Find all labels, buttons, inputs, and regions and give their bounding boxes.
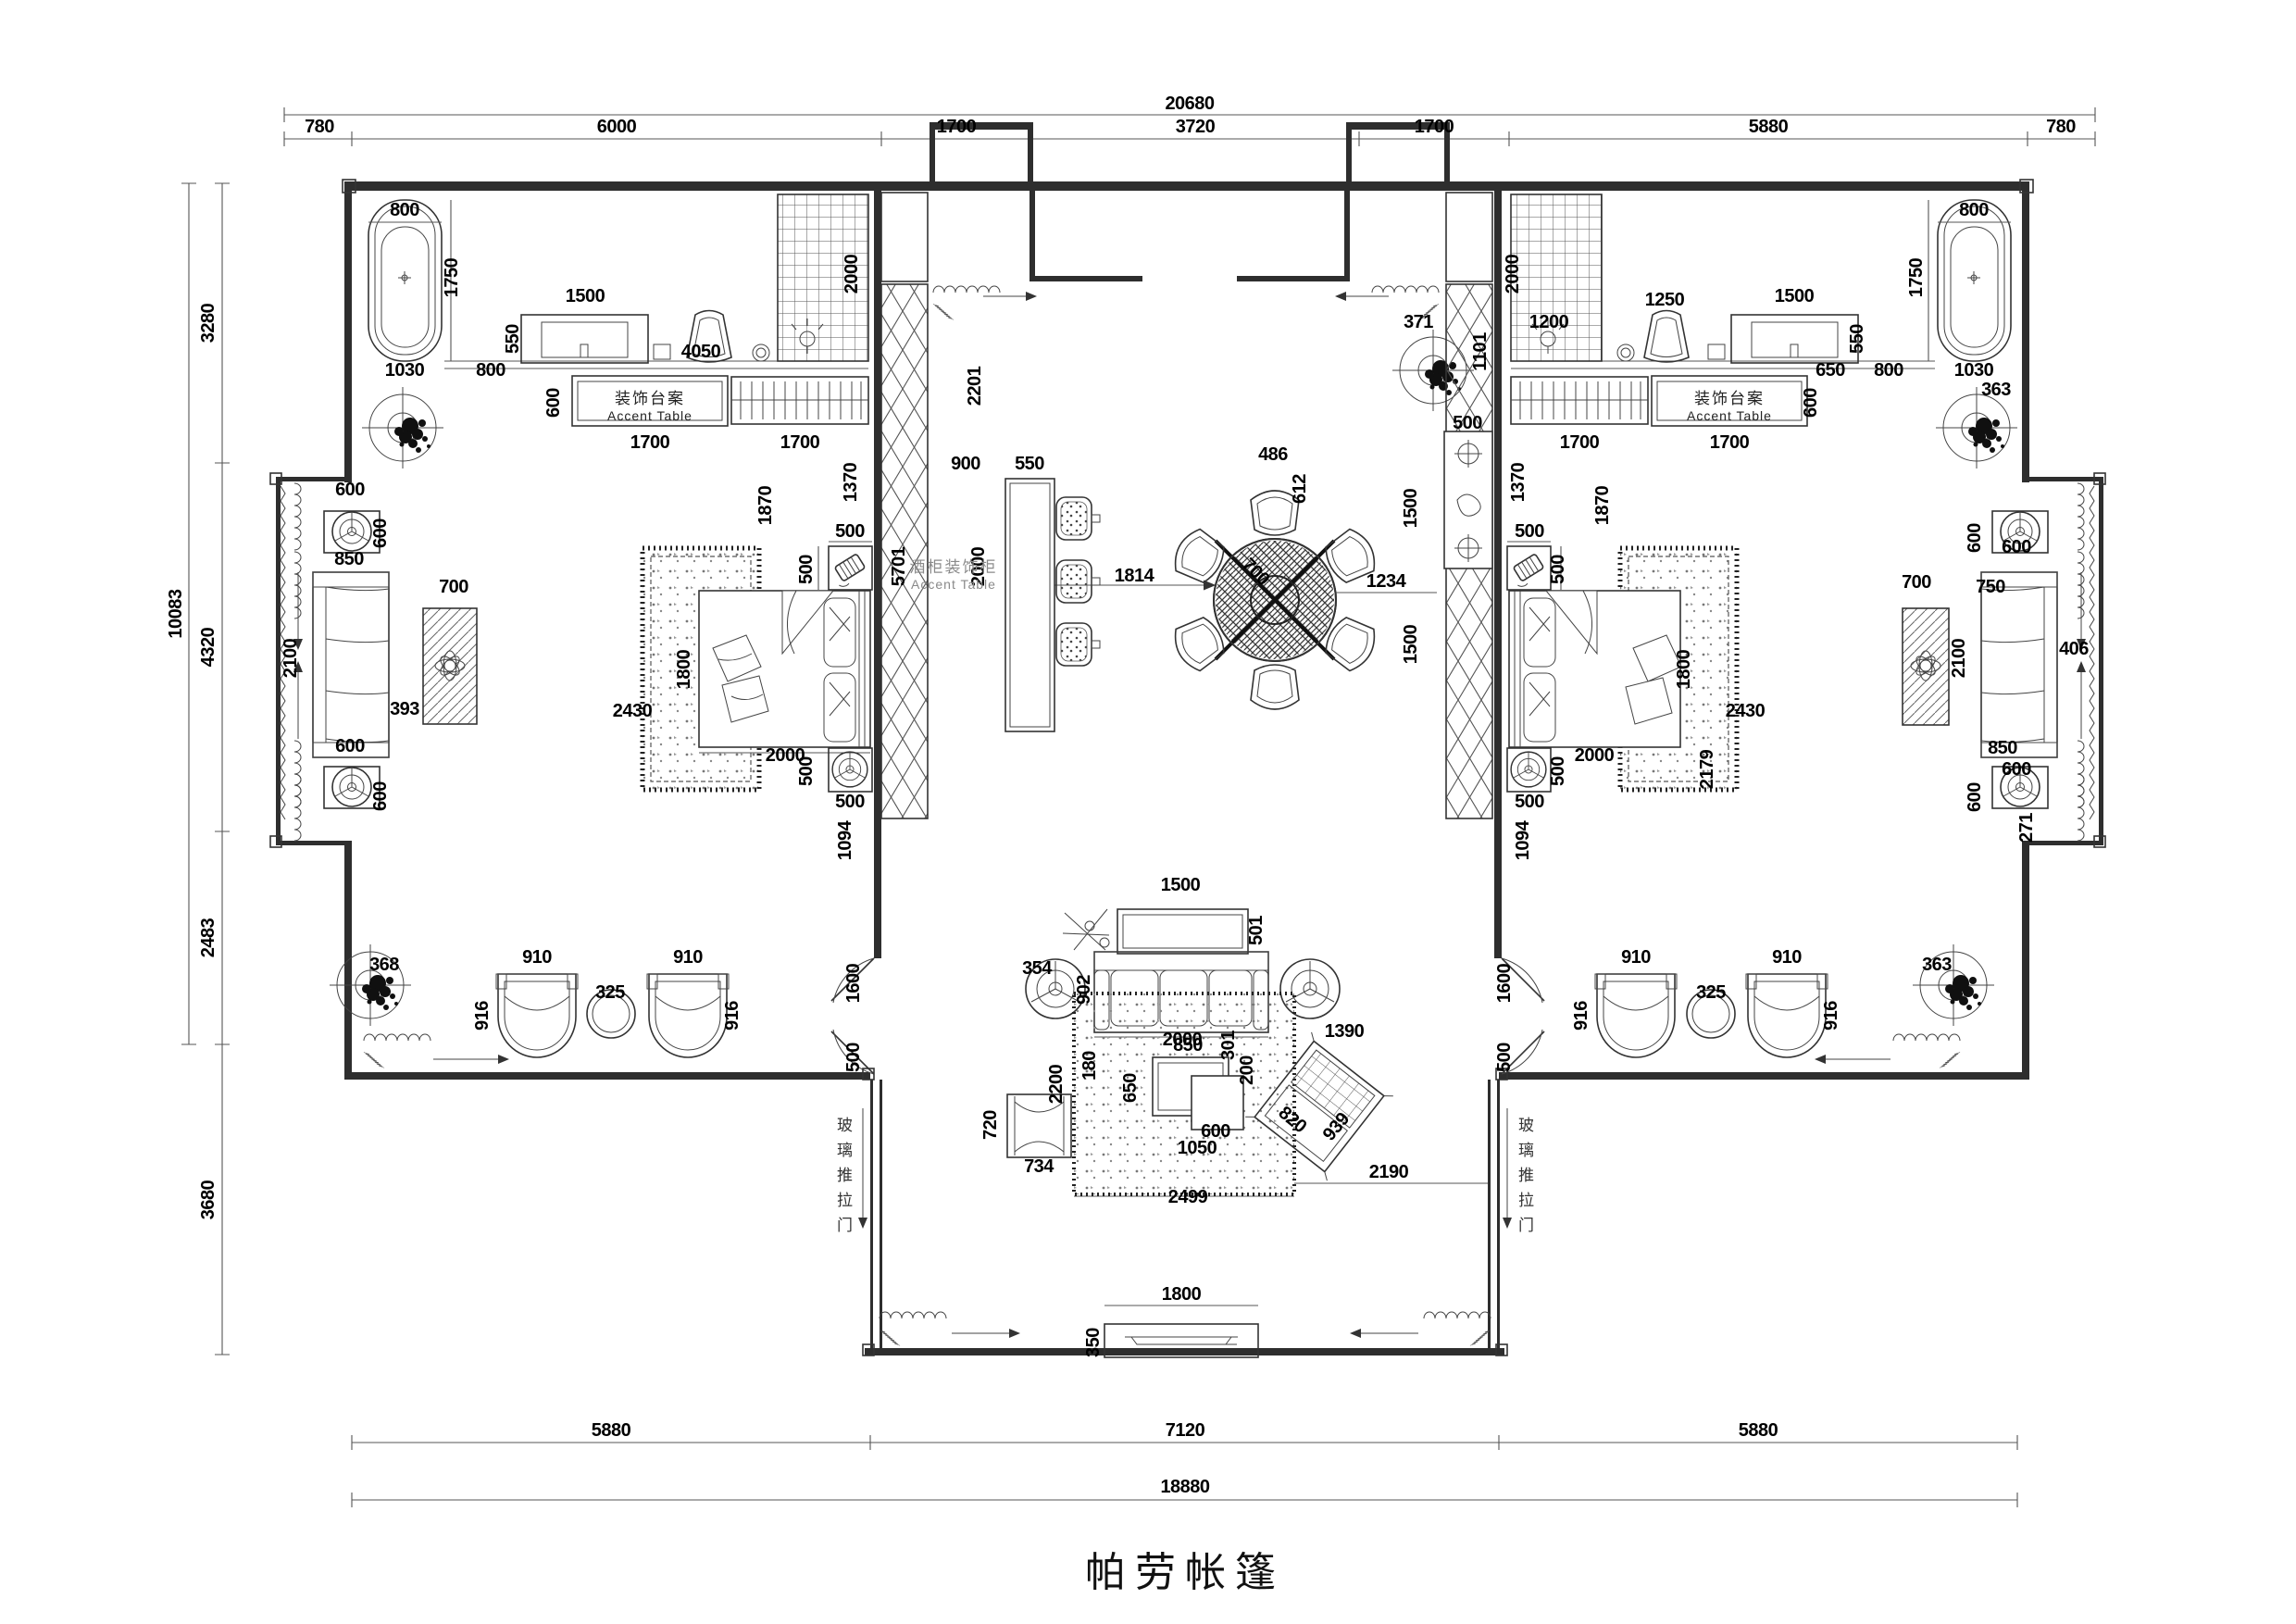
dim-text: 1030 (385, 360, 425, 381)
dim-text: 1094 (1513, 819, 1533, 860)
dim-text: 1600 (843, 963, 864, 1003)
dim-text: 1700 (1415, 117, 1454, 137)
dim-text: 3680 (198, 1180, 218, 1219)
dim-text: 600 (370, 518, 391, 548)
dim-text: 500 (796, 555, 817, 584)
dim-text: 910 (673, 947, 703, 968)
dim-text: 910 (1772, 947, 1802, 968)
dim-text: 7120 (1166, 1420, 1205, 1441)
dim-text: 800 (1959, 200, 1989, 220)
right-bay-lounge (1903, 483, 2084, 841)
accent-table-label-left: 装饰台案 Accent Table (557, 385, 742, 423)
dim-text: 2190 (1369, 1162, 1409, 1182)
dim-text: 486 (1258, 444, 1288, 465)
dim-text: 2000 (1575, 745, 1615, 766)
dim-text: 850 (1173, 1035, 1203, 1056)
dim-text: 612 (1290, 474, 1310, 504)
dim-text: 393 (390, 699, 419, 719)
dim-text: 2000 (1503, 254, 1523, 294)
dim-text: 650 (1816, 360, 1845, 381)
dim-text: 363 (1981, 380, 2011, 400)
dim-text: 1101 (1470, 332, 1491, 371)
dim-text: 500 (1515, 521, 1544, 542)
floorplan-drawing: 2068078060001700372017005880780100833280… (0, 0, 2296, 1624)
dim-text: 2483 (198, 918, 218, 957)
dim-text: 1500 (1161, 875, 1201, 895)
dim-text: 2100 (281, 638, 301, 678)
dim-text: 371 (1404, 312, 1433, 332)
dim-text: 18880 (1160, 1477, 1209, 1497)
accent-table-right-cn: 装饰台案 (1637, 385, 1822, 408)
dim-text: 500 (835, 521, 865, 542)
dim-text: 1250 (1645, 290, 1685, 310)
dim-text: 2430 (613, 701, 653, 721)
dim-text: 10083 (166, 589, 186, 638)
dim-text: 1030 (1954, 360, 1994, 381)
dim-text: 916 (1571, 1001, 1591, 1031)
dim-text: 2499 (1168, 1187, 1208, 1207)
dim-text: 600 (335, 736, 365, 756)
dim-text: 550 (1847, 324, 1867, 354)
dim-text: 5880 (1739, 1420, 1778, 1441)
dim-text: 2179 (1697, 749, 1717, 789)
dim-text: 1234 (1366, 571, 1407, 592)
dim-text: 500 (1494, 1043, 1515, 1072)
accent-table-left-cn: 装饰台案 (557, 385, 742, 408)
dim-text: 354 (1022, 958, 1053, 979)
accent-table-label-right: 装饰台案 Accent Table (1637, 385, 1822, 423)
dim-text: 500 (1515, 792, 1544, 812)
dim-text: 1870 (755, 485, 776, 525)
dim-text: 363 (1922, 955, 1952, 975)
dim-text: 720 (980, 1110, 1001, 1140)
dim-text: 200 (1237, 1056, 1257, 1085)
dim-text: 4050 (681, 342, 721, 362)
dim-text: 501 (1246, 916, 1267, 945)
dim-text: 650 (1120, 1073, 1141, 1103)
dim-text: 1870 (1592, 485, 1613, 525)
dim-text: 800 (1874, 360, 1903, 381)
dim-text: 2201 (965, 366, 985, 406)
dim-text: 600 (1965, 523, 1985, 553)
dim-text: 800 (390, 200, 419, 220)
dim-text: 500 (843, 1043, 864, 1072)
dim-text: 368 (369, 955, 399, 975)
dim-text: 780 (2046, 117, 2076, 137)
dim-text: 916 (1821, 1001, 1841, 1031)
dim-text: 2000 (842, 254, 862, 294)
floorplan-stage: 2068078060001700372017005880780100833280… (0, 0, 2296, 1624)
dim-text: 1800 (1674, 649, 1694, 689)
dim-text: 325 (1696, 982, 1726, 1003)
dim-text: 1500 (1775, 286, 1815, 306)
dim-text: 350 (1083, 1328, 1104, 1357)
dim-text: 600 (1965, 782, 1985, 812)
dim-text: 1500 (1401, 624, 1421, 664)
dim-text: 600 (370, 781, 391, 811)
dim-text: 1200 (1529, 312, 1569, 332)
dim-text: 500 (1453, 413, 1482, 433)
dim-text: 2430 (1726, 701, 1766, 721)
dim-text: 325 (595, 982, 625, 1003)
dim-text: 600 (335, 480, 365, 500)
dim-text: 1750 (1906, 257, 1927, 297)
dim-text: 734 (1024, 1156, 1054, 1177)
dim-text: 3280 (198, 303, 218, 343)
dim-text: 1814 (1115, 566, 1155, 586)
dim-text: 1094 (835, 819, 855, 860)
dim-text: 910 (1621, 947, 1651, 968)
dim-text: 4320 (198, 627, 218, 667)
dim-text: 1600 (1494, 963, 1515, 1003)
dim-text: 750 (1976, 577, 2005, 597)
dim-text: 916 (722, 1001, 742, 1031)
dim-text: 406 (2059, 639, 2089, 659)
dim-text: 1050 (1178, 1138, 1217, 1158)
dim-text: 850 (1988, 738, 2017, 758)
dim-text: 1370 (841, 462, 861, 502)
dim-text: 910 (522, 947, 552, 968)
accent-table-left-en: Accent Table (557, 408, 742, 423)
dim-text: 1700 (780, 432, 820, 453)
dim-text: 500 (796, 756, 817, 786)
dim-text: 550 (503, 324, 523, 354)
dim-text: 700 (1902, 572, 1931, 593)
dim-text: 20680 (1165, 94, 1214, 114)
dim-text: 1700 (1710, 432, 1750, 453)
dim-text: 1700 (630, 432, 670, 453)
dim-text: 3720 (1176, 117, 1216, 137)
dim-text: 5880 (592, 1420, 631, 1441)
dim-text: 600 (2002, 759, 2031, 780)
dim-text: 1700 (1560, 432, 1600, 453)
drawing-title: 帕劳帐篷 (954, 1539, 1416, 1598)
dim-text: 6000 (597, 117, 637, 137)
wine-cabinet-cn: 酒柜装饰柜 (880, 554, 1028, 577)
dim-text: 902 (1074, 975, 1094, 1005)
dim-text: 700 (439, 577, 468, 597)
dim-text: 1370 (1508, 462, 1529, 502)
dim-text: 600 (2002, 537, 2031, 557)
dim-text: 550 (1015, 454, 1044, 474)
dim-text: 500 (1548, 756, 1568, 786)
dim-text: 1800 (1162, 1284, 1202, 1305)
dim-text: 1800 (674, 649, 694, 689)
dim-text: 500 (1548, 555, 1568, 584)
dim-text: 900 (951, 454, 980, 474)
dim-text: 5880 (1749, 117, 1789, 137)
glass-door-label-left: 玻璃推拉门 (831, 1109, 855, 1248)
dim-text: 1500 (1401, 488, 1421, 528)
dim-text: 2100 (1949, 638, 1969, 678)
dim-text: 850 (334, 549, 364, 569)
dim-text: 780 (305, 117, 334, 137)
dim-text: 301 (1218, 1031, 1239, 1060)
dim-text: 1500 (566, 286, 605, 306)
dim-text: 271 (2016, 813, 2037, 843)
dim-text: 800 (476, 360, 505, 381)
dim-text: 1390 (1325, 1021, 1365, 1042)
accent-table-right-en: Accent Table (1637, 408, 1822, 423)
dim-text: 1700 (937, 117, 977, 137)
dim-text: 500 (835, 792, 865, 812)
dimension-chain-lines (181, 107, 2095, 1507)
dim-text: 916 (472, 1001, 493, 1031)
dim-text: 180 (1079, 1051, 1100, 1081)
wine-cabinet-en: Accent Table (880, 577, 1028, 592)
wine-cabinet-label: 酒柜装饰柜 Accent Table (880, 554, 1028, 592)
glass-door-label-right: 玻璃推拉门 (1513, 1109, 1536, 1248)
dimension-annotations: 2068078060001700372017005880780100833280… (166, 94, 2089, 1497)
dim-text: 2200 (1046, 1064, 1067, 1104)
dim-text: 1750 (442, 257, 462, 297)
